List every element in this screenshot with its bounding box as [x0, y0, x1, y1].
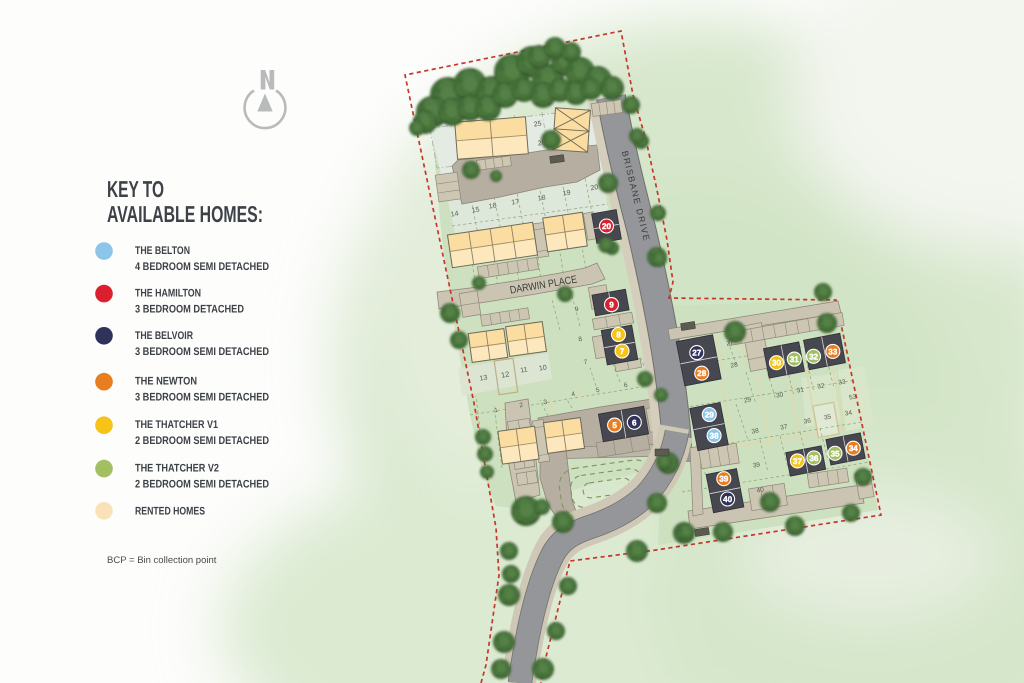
svg-text:THE HAMILTON: THE HAMILTON — [135, 288, 201, 300]
svg-text:RENTED HOMES: RENTED HOMES — [135, 505, 205, 517]
svg-text:29: 29 — [705, 411, 715, 420]
svg-text:17: 17 — [511, 198, 520, 206]
svg-text:31: 31 — [790, 355, 800, 364]
svg-text:4 BEDROOM SEMI DETACHED: 4 BEDROOM SEMI DETACHED — [135, 261, 269, 273]
svg-text:30: 30 — [772, 359, 782, 368]
svg-text:KEY TO: KEY TO — [107, 176, 164, 202]
svg-text:27: 27 — [692, 349, 702, 358]
svg-text:28: 28 — [697, 369, 707, 378]
svg-text:AVAILABLE HOMES:: AVAILABLE HOMES: — [107, 201, 263, 227]
svg-text:40: 40 — [723, 495, 733, 504]
svg-text:7: 7 — [620, 347, 625, 356]
svg-text:20: 20 — [590, 184, 599, 192]
svg-text:16: 16 — [488, 202, 497, 210]
svg-text:14: 14 — [450, 210, 459, 218]
svg-text:6: 6 — [632, 418, 637, 427]
svg-text:20: 20 — [602, 222, 612, 231]
svg-text:13: 13 — [479, 374, 488, 382]
svg-text:9: 9 — [609, 301, 614, 310]
svg-text:15: 15 — [471, 206, 480, 214]
svg-text:2 BEDROOM SEMI DETACHED: 2 BEDROOM SEMI DETACHED — [135, 479, 269, 491]
svg-text:38: 38 — [710, 432, 720, 441]
svg-text:18: 18 — [537, 194, 546, 202]
svg-text:8: 8 — [616, 331, 621, 340]
svg-text:36: 36 — [809, 454, 819, 463]
svg-text:26: 26 — [537, 139, 546, 147]
svg-text:35: 35 — [830, 449, 840, 458]
svg-text:3 BEDROOM SEMI DETACHED: 3 BEDROOM SEMI DETACHED — [135, 392, 269, 404]
svg-text:25: 25 — [533, 120, 542, 128]
svg-text:10: 10 — [538, 364, 547, 372]
svg-text:THE NEWTON: THE NEWTON — [135, 376, 197, 388]
svg-text:3 BEDROOM SEMI DETACHED: 3 BEDROOM SEMI DETACHED — [135, 346, 269, 358]
svg-text:11: 11 — [520, 366, 528, 374]
svg-text:THE BELTON: THE BELTON — [135, 245, 190, 257]
svg-text:5: 5 — [612, 421, 617, 430]
svg-text:BCP = Bin collection point: BCP = Bin collection point — [107, 555, 217, 566]
svg-text:2 BEDROOM SEMI DETACHED: 2 BEDROOM SEMI DETACHED — [135, 435, 269, 447]
svg-text:34: 34 — [849, 444, 859, 453]
svg-text:19: 19 — [562, 189, 571, 197]
svg-text:THE THATCHER V2: THE THATCHER V2 — [135, 463, 219, 475]
svg-text:32: 32 — [809, 352, 819, 361]
svg-text:THE THATCHER V1: THE THATCHER V1 — [135, 419, 218, 431]
svg-text:12: 12 — [500, 369, 510, 379]
svg-text:37: 37 — [793, 457, 803, 466]
svg-text:33: 33 — [828, 347, 838, 356]
svg-text:39: 39 — [719, 475, 729, 484]
svg-text:THE BELVOIR: THE BELVOIR — [135, 330, 193, 342]
svg-text:3 BEDROOM DETACHED: 3 BEDROOM DETACHED — [135, 304, 244, 316]
